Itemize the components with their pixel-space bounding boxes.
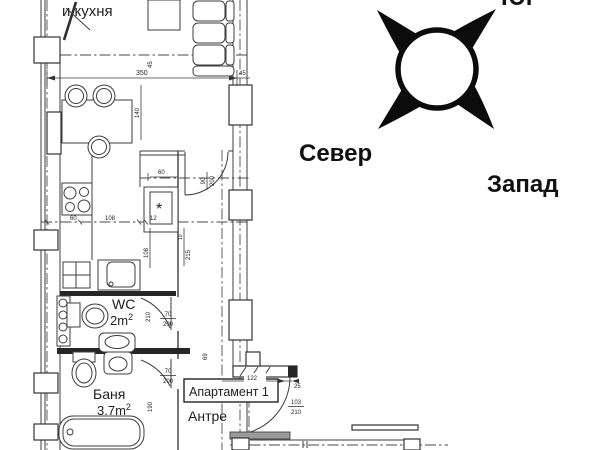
dim-entry-25: 25 bbox=[294, 384, 301, 390]
dim-entry-122: 122 bbox=[247, 376, 258, 382]
dim-shaft-108: 108 bbox=[144, 247, 150, 258]
dim-entry-door: 103 210 bbox=[288, 400, 304, 416]
room-label-wc: WC bbox=[112, 296, 135, 312]
dim-kitchen-12: 12 bbox=[150, 216, 157, 222]
svg-text:103: 103 bbox=[291, 400, 302, 406]
apartment-label: Апартамент 1 bbox=[189, 385, 269, 399]
dim-level-10: 10 bbox=[178, 234, 184, 240]
bathroom: Баня 3.7m2 bbox=[59, 352, 171, 449]
dim-sofa-45: 45 bbox=[148, 61, 154, 68]
dim-hall-69: 69 bbox=[203, 353, 209, 360]
shaft: * bbox=[144, 187, 178, 232]
svg-text:200: 200 bbox=[163, 322, 174, 328]
wc-room: WC 2m2 bbox=[57, 296, 171, 352]
sofa bbox=[193, 1, 234, 76]
stove bbox=[62, 183, 92, 215]
compass-clipped-top-label: Юг bbox=[501, 0, 536, 11]
entry-area: Апартамент 1 Антре bbox=[184, 352, 420, 450]
dim-bath-door: 70 200 bbox=[160, 369, 176, 385]
svg-text:70: 70 bbox=[165, 312, 172, 318]
dim-right-45: 45 bbox=[239, 71, 246, 77]
svg-text:210: 210 bbox=[291, 410, 302, 416]
svg-text:90: 90 bbox=[201, 177, 207, 184]
wc-area: 2m2 bbox=[110, 312, 133, 328]
dim-upper-60: 60 bbox=[158, 170, 165, 176]
dim-dining-140: 140 bbox=[135, 107, 141, 118]
living-room: и кухня bbox=[62, 0, 234, 195]
hall-label: Антре bbox=[188, 408, 227, 424]
kitchen-cabinet bbox=[63, 262, 90, 288]
floor-plan-page: { "compass": { "north_label": "Север", "… bbox=[0, 0, 600, 450]
dim-bath-190: 190 bbox=[148, 401, 154, 412]
apartment-label-box: Апартамент 1 bbox=[184, 379, 278, 402]
dining-set bbox=[62, 85, 132, 158]
svg-text:200: 200 bbox=[210, 175, 216, 186]
floor-plan-drawing: и кухня bbox=[0, 0, 600, 450]
svg-text:200: 200 bbox=[163, 379, 174, 385]
dim-kitchen-108: 108 bbox=[105, 216, 116, 222]
compass-west-label: Запад bbox=[487, 171, 558, 198]
coffee-table bbox=[148, 0, 180, 30]
dim-living-door: 90 200 bbox=[201, 172, 216, 190]
dim-total-350: 350 bbox=[136, 70, 148, 77]
wc-sink bbox=[99, 333, 135, 352]
bath-toilet bbox=[72, 352, 96, 387]
svg-text:70: 70 bbox=[165, 369, 172, 375]
compass-rose: Север Запад Юг bbox=[299, 0, 558, 198]
bathtub bbox=[59, 416, 144, 449]
shaft-symbol: * bbox=[156, 201, 162, 218]
dim-kitchen-60: 60 bbox=[70, 216, 77, 222]
bath-sink bbox=[104, 352, 132, 374]
room-label-bath: Баня bbox=[93, 386, 125, 402]
wc-toilet bbox=[67, 303, 108, 328]
kitchen-sink bbox=[98, 260, 140, 290]
dim-level-215: 215 bbox=[186, 249, 192, 260]
compass-north-label: Север bbox=[299, 140, 372, 167]
compass-circle bbox=[398, 30, 476, 108]
dim-wc-210: 210 bbox=[146, 311, 152, 322]
kitchen: * bbox=[62, 183, 178, 290]
